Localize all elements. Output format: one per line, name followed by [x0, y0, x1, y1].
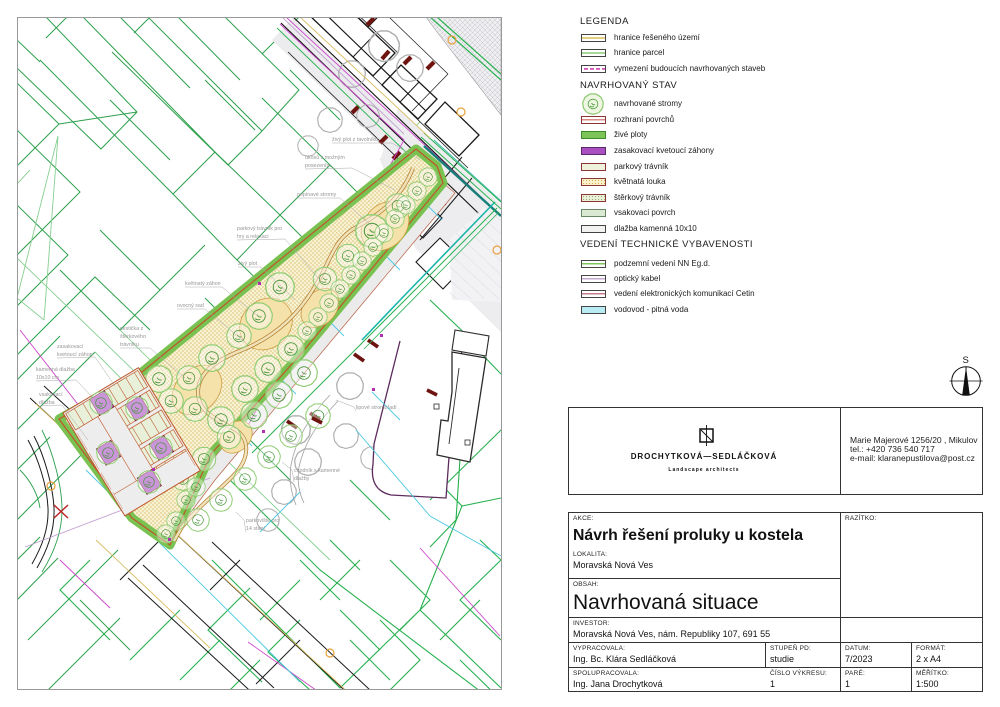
svg-text:květnatý záhon: květnatý záhon [185, 281, 221, 287]
svg-text:ovocný sad: ovocný sad [177, 303, 204, 309]
svg-text:S: S [963, 355, 969, 366]
svg-text:dlažba: dlažba [39, 400, 55, 406]
svg-text:štěrkového: štěrkového [120, 334, 146, 340]
svg-text:kamenná dlažba: kamenná dlažba [36, 367, 75, 373]
svg-text:parkový trávník pro: parkový trávník pro [237, 226, 282, 232]
svg-text:parkoviště pro: parkoviště pro [246, 518, 279, 524]
svg-text:posezením: posezením [305, 163, 331, 169]
svg-text:lipové stromořadí: lipové stromořadí [356, 405, 397, 411]
svg-text:živý plot z tavolníku: živý plot z tavolníku [332, 137, 378, 143]
svg-text:zasakovací: zasakovací [57, 344, 84, 350]
svg-text:chodník s kamenné: chodník s kamenné [294, 468, 340, 474]
svg-text:14 stání: 14 stání [246, 526, 265, 532]
svg-text:cestička z: cestička z [120, 326, 144, 332]
svg-text:úkosů s možným: úkosů s možným [305, 154, 345, 161]
svg-text:trávníku: trávníku [120, 342, 139, 348]
svg-text:dlažby: dlažby [294, 476, 310, 482]
svg-text:10x10 cm: 10x10 cm [36, 375, 60, 381]
svg-text:živý plot: živý plot [238, 261, 258, 267]
svg-text:vsakovací: vsakovací [39, 392, 63, 398]
svg-text:popínavé stromy: popínavé stromy [297, 192, 337, 198]
svg-text:hry a relaxaci: hry a relaxaci [237, 234, 269, 240]
